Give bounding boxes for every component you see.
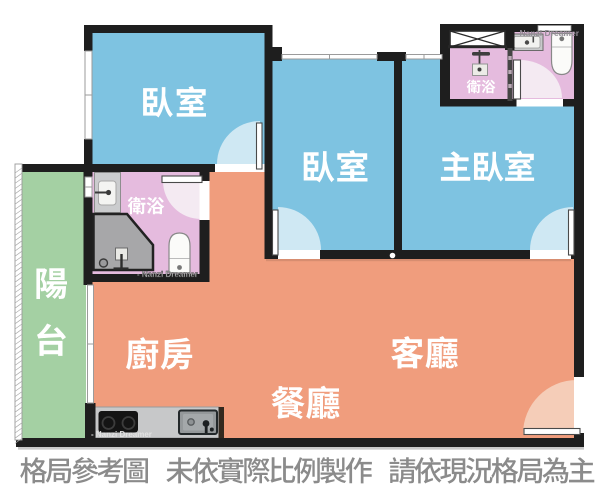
svg-text:Nanzi Dreamer: Nanzi Dreamer [520, 28, 580, 38]
svg-text:- Nanzi Dreamer: - Nanzi Dreamer [137, 270, 198, 279]
svg-text:- Nanzi Dreamer: - Nanzi Dreamer [91, 430, 152, 439]
